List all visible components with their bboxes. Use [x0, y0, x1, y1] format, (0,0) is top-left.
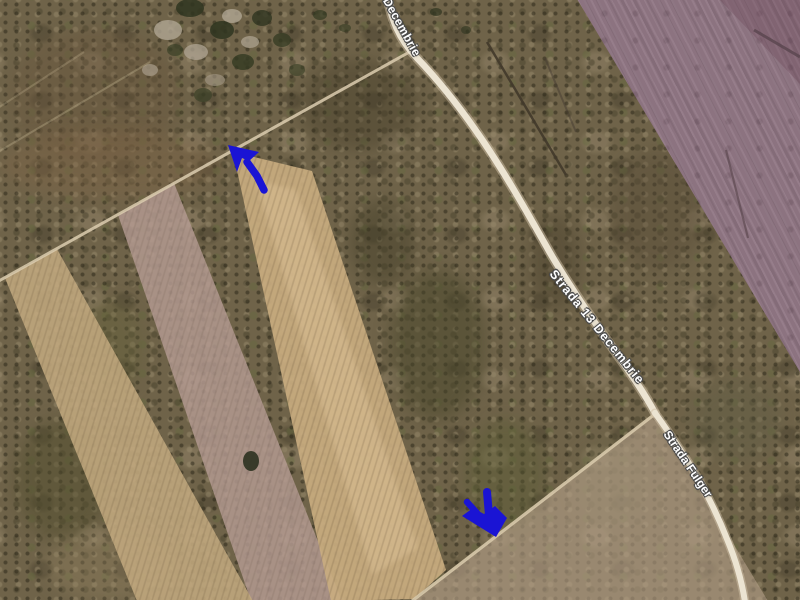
tree-icon	[194, 88, 212, 102]
tree-icon	[252, 10, 272, 26]
tree-icon	[461, 26, 471, 34]
tree-icon	[289, 64, 305, 76]
tree-icon	[167, 44, 183, 56]
tree-icon	[232, 54, 254, 70]
lone-bush-icon	[243, 451, 259, 471]
field-boundary-lines	[487, 30, 800, 238]
tree-icon	[273, 33, 291, 47]
map-canvas[interactable]: Decembrie Strada 13 Decembrie Strada Ful…	[0, 0, 800, 600]
field-strips	[5, 152, 768, 600]
tree-icon	[313, 10, 327, 20]
tree-icon	[210, 21, 234, 39]
tree-icon	[176, 0, 204, 17]
tree-icon	[430, 8, 442, 16]
field-boundary-track	[0, 50, 413, 282]
map-features-overlay	[0, 0, 800, 600]
annotation-arrow-down-right	[462, 492, 507, 537]
tree-icon	[339, 24, 351, 32]
